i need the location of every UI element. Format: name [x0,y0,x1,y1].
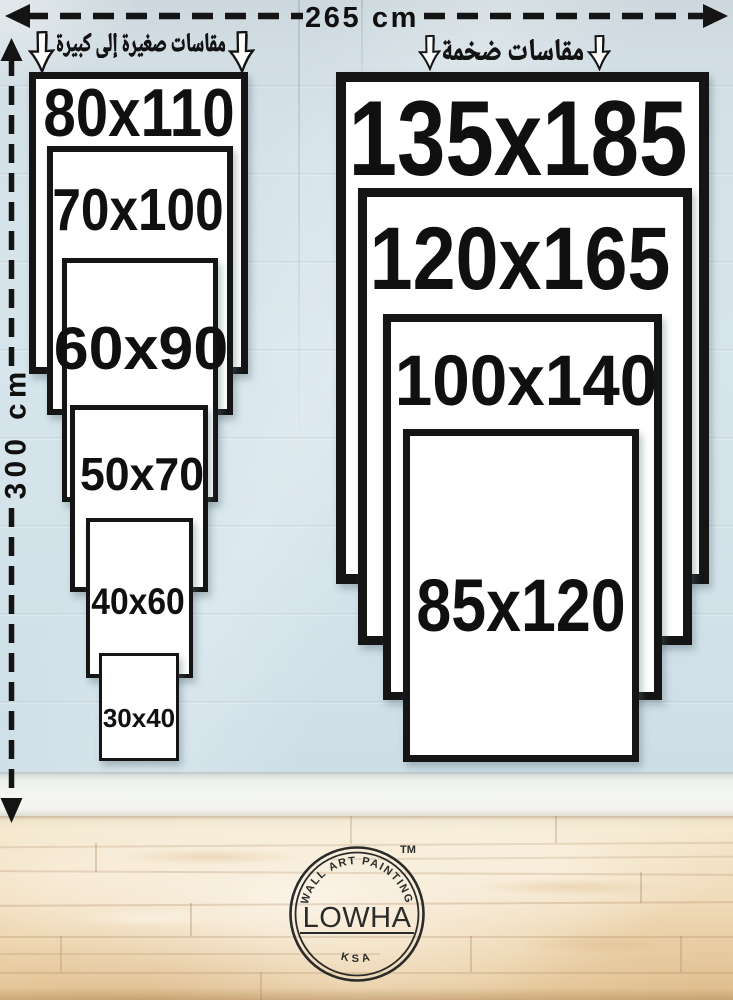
svg-text:LOWHA: LOWHA [303,902,412,934]
svg-text:KSA: KSA [340,951,375,965]
